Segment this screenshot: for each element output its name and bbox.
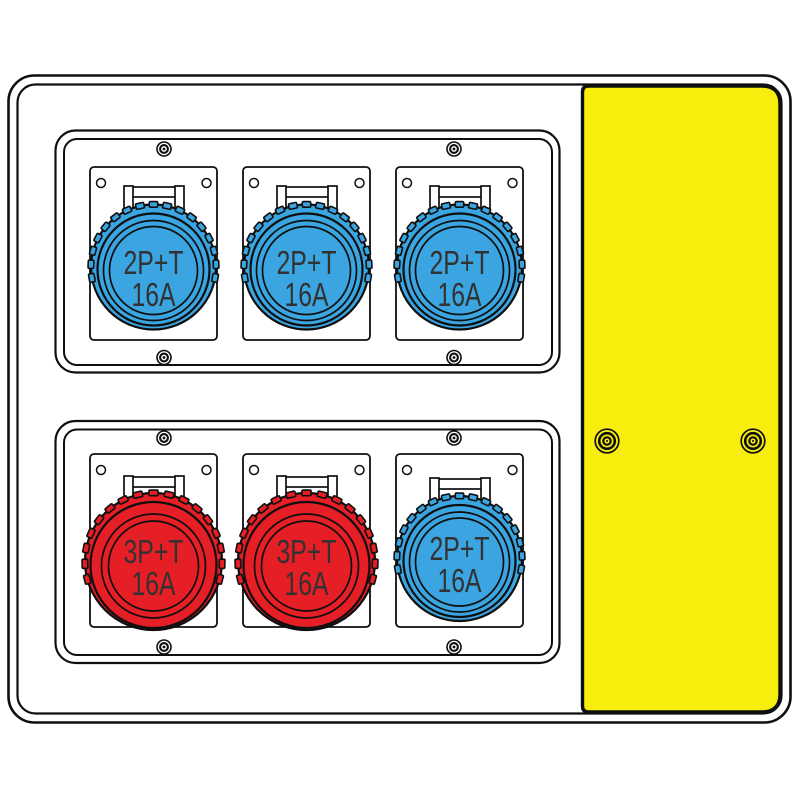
plate-hole bbox=[508, 179, 517, 188]
flange-tooth bbox=[302, 490, 311, 496]
screw-center-dot bbox=[163, 646, 166, 649]
flange-tooth bbox=[519, 260, 525, 269]
lid-bracket-post bbox=[175, 476, 184, 498]
flange-tooth bbox=[219, 559, 225, 568]
lid-bracket-bar bbox=[435, 479, 484, 489]
flange-tooth bbox=[317, 491, 327, 499]
panel-screw bbox=[447, 351, 461, 365]
side-cover-panel bbox=[583, 86, 781, 712]
flange-tooth bbox=[516, 538, 524, 548]
lid-bracket-post bbox=[124, 476, 133, 498]
screw-center-dot bbox=[163, 148, 166, 151]
flange-tooth bbox=[82, 559, 88, 568]
flange-tooth bbox=[370, 543, 377, 553]
screw-center-dot bbox=[163, 356, 166, 359]
flange-tooth bbox=[369, 574, 377, 584]
plate-hole bbox=[202, 466, 211, 475]
flange-tooth bbox=[236, 543, 243, 553]
socket-unit-top-1: 2P+T 16A bbox=[88, 167, 219, 340]
plate-hole bbox=[403, 179, 412, 188]
socket-label-line2: 16A bbox=[438, 562, 482, 599]
flange-tooth bbox=[366, 260, 372, 269]
flange-tooth bbox=[162, 202, 171, 209]
flange-tooth bbox=[89, 246, 97, 256]
plate-hole bbox=[250, 179, 259, 188]
socket-label-line2: 16A bbox=[438, 276, 482, 313]
cover-screw bbox=[741, 429, 765, 453]
panel-screw bbox=[447, 640, 461, 654]
lid-bracket-post bbox=[277, 476, 286, 498]
flange-tooth bbox=[518, 273, 525, 282]
lid-bracket-post bbox=[328, 476, 337, 498]
flange-tooth bbox=[365, 273, 372, 282]
side-cover-face bbox=[583, 86, 781, 712]
flange-tooth bbox=[455, 202, 463, 208]
flange-tooth bbox=[516, 246, 524, 256]
flange-tooth bbox=[394, 260, 400, 269]
flange-tooth bbox=[518, 565, 525, 574]
flange-tooth bbox=[394, 565, 401, 574]
flange-tooth bbox=[519, 551, 525, 560]
flange-tooth bbox=[88, 260, 94, 269]
flange-tooth bbox=[395, 246, 403, 256]
plate-hole bbox=[97, 466, 106, 475]
panel-screw bbox=[157, 640, 171, 654]
plate-hole bbox=[97, 179, 106, 188]
screw-center-dot bbox=[752, 440, 754, 442]
flange-tooth bbox=[88, 273, 95, 282]
flange-tooth bbox=[441, 494, 450, 501]
flange-tooth bbox=[212, 273, 219, 282]
flange-tooth bbox=[441, 202, 450, 209]
flange-tooth bbox=[455, 493, 463, 499]
diagram-canvas: 2P+T 16A 2P+T 16A 2P+T 16A bbox=[0, 0, 800, 800]
socket-label-line2: 16A bbox=[132, 565, 176, 602]
flange-tooth bbox=[363, 246, 371, 256]
flange-tooth bbox=[83, 574, 91, 584]
socket-unit-top-2: 2P+T 16A bbox=[241, 167, 372, 340]
plate-hole bbox=[355, 179, 364, 188]
flange-tooth bbox=[133, 491, 143, 499]
panel-screw bbox=[157, 142, 171, 156]
flange-tooth bbox=[164, 491, 174, 499]
plate-hole bbox=[355, 466, 364, 475]
panel-screw bbox=[157, 431, 171, 445]
flange-tooth bbox=[149, 490, 158, 496]
socket-label-line2: 16A bbox=[132, 276, 176, 313]
flange-tooth bbox=[302, 202, 310, 208]
flange-tooth bbox=[468, 494, 477, 501]
screw-center-dot bbox=[453, 646, 456, 649]
flange-tooth bbox=[217, 543, 224, 553]
panel-screw bbox=[157, 351, 171, 365]
lid-bracket-bar bbox=[282, 477, 331, 487]
flange-tooth bbox=[288, 202, 297, 209]
flange-tooth bbox=[216, 574, 224, 584]
socket-label-line2: 16A bbox=[285, 276, 329, 313]
flange-tooth bbox=[242, 246, 250, 256]
flange-tooth bbox=[394, 551, 400, 560]
flange-tooth bbox=[135, 202, 144, 209]
screw-center-dot bbox=[453, 437, 456, 440]
flange-tooth bbox=[236, 574, 244, 584]
lid-bracket-bar bbox=[129, 187, 178, 197]
socket-label-line2: 16A bbox=[285, 565, 329, 602]
flange-tooth bbox=[149, 202, 157, 208]
flange-tooth bbox=[315, 202, 324, 209]
flange-tooth bbox=[394, 273, 401, 282]
socket-unit-bottom-3: 2P+T 16A bbox=[394, 454, 525, 627]
panel-screw bbox=[447, 142, 461, 156]
lid-bracket-bar bbox=[129, 477, 178, 487]
flange-tooth bbox=[210, 246, 218, 256]
lid-bracket-bar bbox=[435, 187, 484, 197]
screw-center-dot bbox=[453, 148, 456, 151]
flange-tooth bbox=[395, 538, 403, 548]
screw-center-dot bbox=[453, 356, 456, 359]
plate-hole bbox=[250, 466, 259, 475]
socket-unit-bottom-1: 3P+T 16A bbox=[82, 454, 225, 630]
plate-hole bbox=[508, 466, 517, 475]
cover-screw bbox=[595, 429, 619, 453]
flange-tooth bbox=[468, 202, 477, 209]
screw-center-dot bbox=[606, 440, 608, 442]
flange-tooth bbox=[241, 260, 247, 269]
distribution-board-diagram: 2P+T 16A 2P+T 16A 2P+T 16A bbox=[0, 0, 800, 800]
flange-tooth bbox=[213, 260, 219, 269]
flange-tooth bbox=[83, 543, 90, 553]
panel-screw bbox=[447, 431, 461, 445]
lid-bracket-bar bbox=[282, 187, 331, 197]
socket-unit-bottom-2: 3P+T 16A bbox=[235, 454, 378, 630]
flange-tooth bbox=[235, 559, 241, 568]
flange-tooth bbox=[286, 491, 296, 499]
socket-unit-top-3: 2P+T 16A bbox=[394, 167, 525, 340]
flange-tooth bbox=[241, 273, 248, 282]
lid-bracket-post bbox=[481, 478, 490, 501]
flange-tooth bbox=[372, 559, 378, 568]
screw-center-dot bbox=[163, 437, 166, 440]
plate-hole bbox=[403, 466, 412, 475]
plate-hole bbox=[202, 179, 211, 188]
